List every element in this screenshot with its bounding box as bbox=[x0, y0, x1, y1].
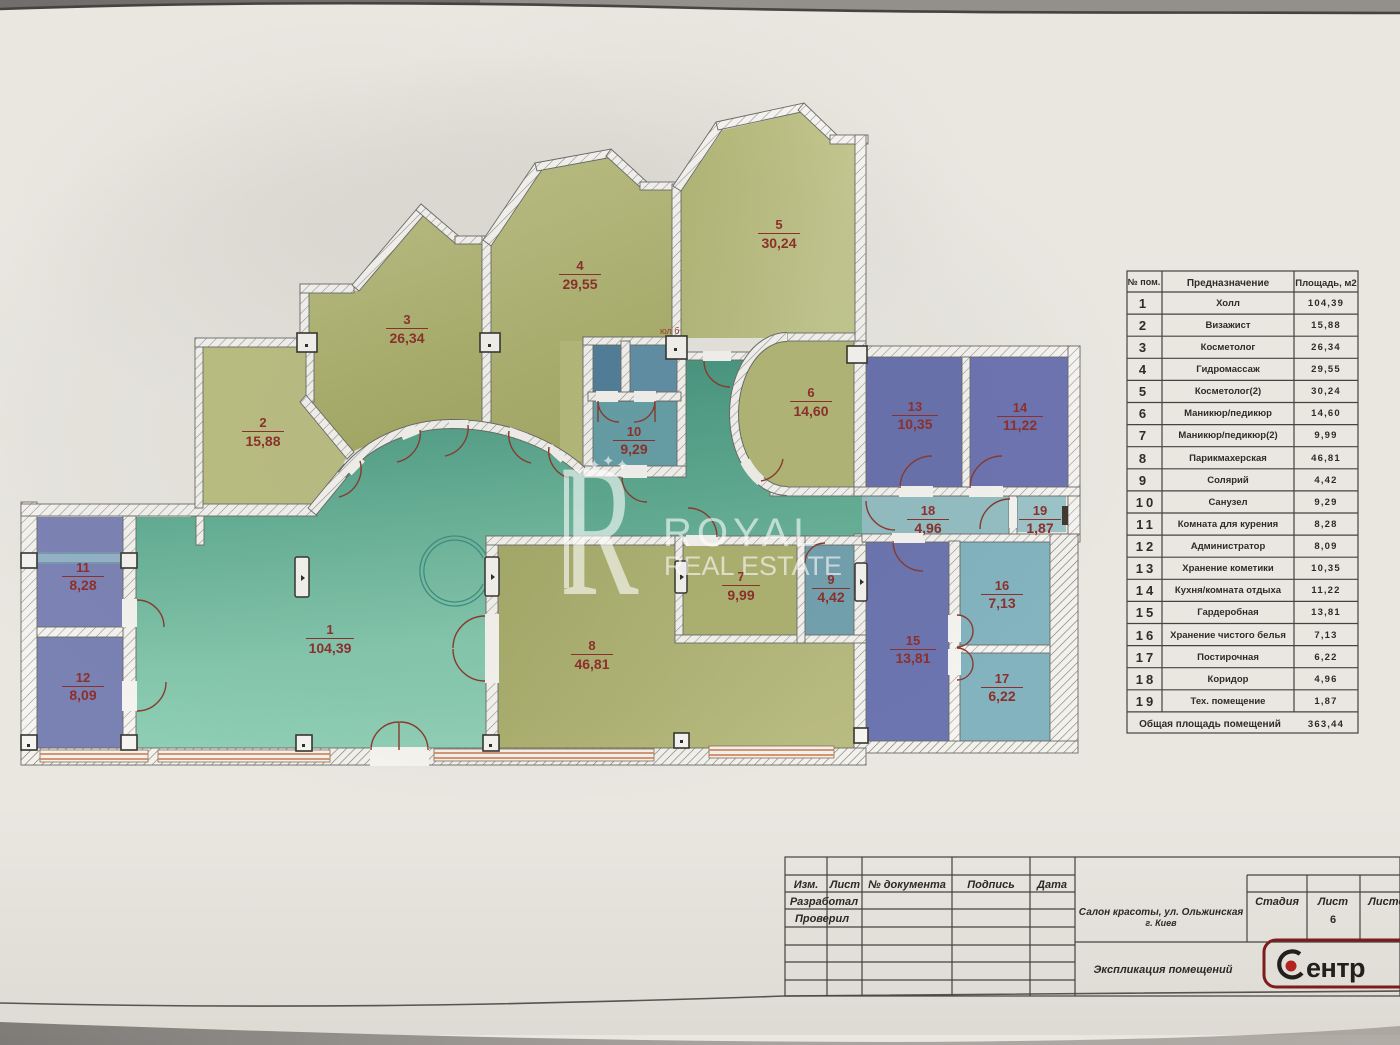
svg-text:6,22: 6,22 bbox=[1314, 652, 1337, 663]
svg-text:Маникюр/педикюр(2): Маникюр/педикюр(2) bbox=[1178, 430, 1277, 441]
svg-text:Изм.: Изм. bbox=[794, 879, 819, 891]
svg-text:6: 6 bbox=[1139, 406, 1149, 421]
svg-text:10,35: 10,35 bbox=[1311, 563, 1341, 574]
svg-text:Общая площадь помещений: Общая площадь помещений bbox=[1139, 718, 1281, 730]
svg-text:ентр: ентр bbox=[1306, 953, 1365, 983]
svg-text:17: 17 bbox=[995, 671, 1009, 686]
svg-text:14,60: 14,60 bbox=[1311, 408, 1341, 419]
svg-text:R: R bbox=[560, 426, 639, 636]
svg-text:Хранение чистого белья: Хранение чистого белья bbox=[1170, 630, 1286, 641]
svg-text:11: 11 bbox=[1136, 517, 1156, 532]
svg-text:Листов: Листов bbox=[1367, 896, 1400, 908]
svg-text:Холл: Холл bbox=[1216, 298, 1240, 309]
svg-text:4,42: 4,42 bbox=[1314, 475, 1337, 486]
svg-text:18: 18 bbox=[1136, 672, 1156, 687]
svg-text:8,28: 8,28 bbox=[1314, 519, 1337, 530]
svg-text:г. Киев: г. Киев bbox=[1145, 918, 1177, 928]
svg-text:6,22: 6,22 bbox=[988, 688, 1015, 704]
svg-text:Подпись: Подпись bbox=[967, 879, 1015, 891]
svg-text:Косметолог: Косметолог bbox=[1201, 342, 1256, 353]
svg-text:26,34: 26,34 bbox=[1311, 342, 1341, 353]
svg-text:9: 9 bbox=[1139, 473, 1149, 488]
svg-text:Администратор: Администратор bbox=[1191, 541, 1266, 552]
svg-text:104,39: 104,39 bbox=[1308, 298, 1344, 309]
svg-text:7: 7 bbox=[1139, 428, 1149, 443]
svg-text:30,24: 30,24 bbox=[1311, 386, 1341, 397]
svg-text:17: 17 bbox=[1136, 650, 1156, 665]
svg-text:№ документа: № документа bbox=[868, 879, 946, 891]
svg-text:Парикмахерская: Парикмахерская bbox=[1189, 453, 1267, 464]
svg-text:1: 1 bbox=[1139, 296, 1149, 311]
svg-text:8: 8 bbox=[1139, 451, 1149, 466]
svg-text:Предназначение: Предназначение bbox=[1187, 278, 1270, 289]
svg-text:Гидромассаж: Гидромассаж bbox=[1196, 364, 1260, 375]
svg-text:Санузел: Санузел bbox=[1208, 497, 1247, 508]
svg-text:15,88: 15,88 bbox=[1311, 320, 1341, 331]
svg-text:Экспликация помещений: Экспликация помещений bbox=[1094, 964, 1233, 976]
svg-text:Маникюр/педикюр: Маникюр/педикюр bbox=[1184, 408, 1272, 419]
svg-text:4,96: 4,96 bbox=[1314, 674, 1337, 685]
svg-text:Комната для курения: Комната для курения bbox=[1178, 519, 1278, 530]
svg-text:Тех. помещение: Тех. помещение bbox=[1191, 696, 1266, 707]
svg-text:Проверил: Проверил bbox=[795, 913, 849, 925]
svg-text:13,81: 13,81 bbox=[1311, 607, 1341, 618]
svg-text:REAL ESTATE: REAL ESTATE bbox=[664, 551, 842, 581]
svg-text:Площадь, м2: Площадь, м2 bbox=[1295, 278, 1356, 289]
svg-text:29,55: 29,55 bbox=[1311, 364, 1341, 375]
svg-text:9,29: 9,29 bbox=[1314, 497, 1337, 508]
svg-text:6: 6 bbox=[1330, 914, 1336, 926]
svg-text:7,13: 7,13 bbox=[1314, 630, 1337, 641]
svg-text:15: 15 bbox=[1136, 605, 1156, 620]
svg-text:Коридор: Коридор bbox=[1208, 674, 1249, 685]
svg-text:4: 4 bbox=[1139, 362, 1149, 377]
svg-text:3: 3 bbox=[1139, 340, 1149, 355]
svg-text:14: 14 bbox=[1136, 583, 1156, 598]
svg-text:Разработал: Разработал bbox=[790, 896, 858, 908]
svg-text:Солярий: Солярий bbox=[1207, 475, 1249, 486]
svg-text:9,99: 9,99 bbox=[1314, 430, 1337, 441]
svg-text:Стадия: Стадия bbox=[1255, 896, 1299, 908]
svg-text:Косметолог(2): Косметолог(2) bbox=[1195, 386, 1261, 397]
svg-text:13: 13 bbox=[1136, 561, 1156, 576]
svg-text:16: 16 bbox=[1136, 628, 1156, 643]
svg-text:Визажист: Визажист bbox=[1205, 320, 1250, 331]
svg-text:5: 5 bbox=[1139, 384, 1149, 399]
svg-text:Салон красоты, ул. Ольжинская: Салон красоты, ул. Ольжинская bbox=[1079, 907, 1244, 918]
svg-text:11,22: 11,22 bbox=[1311, 585, 1340, 596]
svg-text:1,87: 1,87 bbox=[1314, 696, 1337, 707]
svg-text:Гардеробная: Гардеробная bbox=[1197, 607, 1258, 618]
svg-text:ROYAL: ROYAL bbox=[663, 511, 821, 555]
svg-text:46,81: 46,81 bbox=[1311, 453, 1341, 464]
svg-text:8,09: 8,09 bbox=[1314, 541, 1337, 552]
svg-text:№ пом.: № пом. bbox=[1128, 277, 1161, 287]
svg-text:2: 2 bbox=[1139, 318, 1149, 333]
svg-text:Хранение кометики: Хранение кометики bbox=[1182, 563, 1274, 574]
svg-text:363,44: 363,44 bbox=[1308, 719, 1344, 730]
svg-text:10: 10 bbox=[1136, 495, 1156, 510]
svg-text:Лист: Лист bbox=[1317, 896, 1348, 908]
svg-text:Лист: Лист bbox=[829, 879, 860, 891]
svg-text:Дата: Дата bbox=[1036, 879, 1067, 891]
svg-text:19: 19 bbox=[1136, 694, 1156, 709]
svg-text:12: 12 bbox=[1136, 539, 1156, 554]
svg-text:Постирочная: Постирочная bbox=[1197, 652, 1259, 663]
svg-text:Кухня/комната отдыха: Кухня/комната отдыха bbox=[1175, 585, 1282, 596]
